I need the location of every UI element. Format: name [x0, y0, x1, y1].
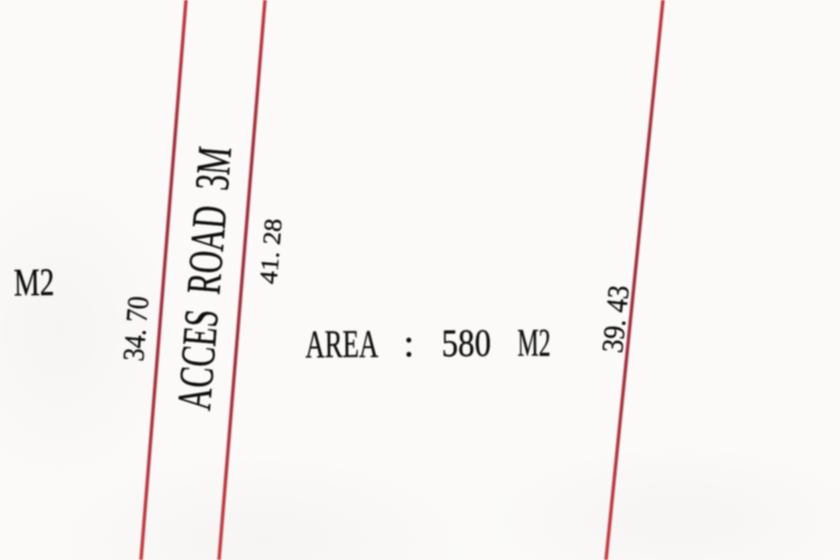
- svg-text:AREA: AREA: [305, 323, 378, 367]
- svg-text::: :: [403, 322, 414, 365]
- svg-text:39. 43: 39. 43: [596, 284, 636, 354]
- svg-text:34. 70: 34. 70: [117, 295, 155, 362]
- svg-text:580: 580: [441, 322, 491, 365]
- svg-text:41. 28: 41. 28: [255, 218, 287, 285]
- svg-text:M2: M2: [517, 321, 550, 364]
- svg-text:M2: M2: [14, 261, 55, 304]
